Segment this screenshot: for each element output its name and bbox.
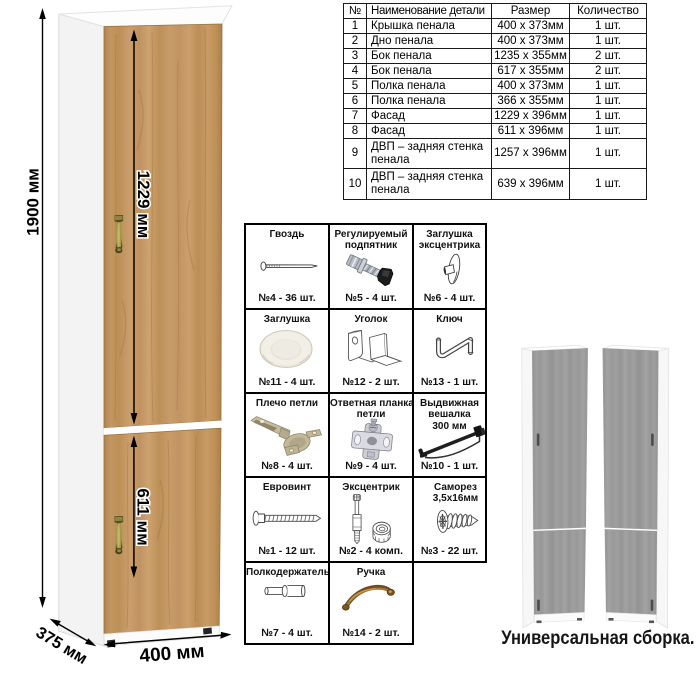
svg-text:400 мм: 400 мм [139,641,206,667]
svg-text:1229 мм: 1229 мм [134,171,153,239]
svg-text:1900 мм: 1900 мм [24,168,43,236]
svg-text:611 мм: 611 мм [133,488,152,545]
